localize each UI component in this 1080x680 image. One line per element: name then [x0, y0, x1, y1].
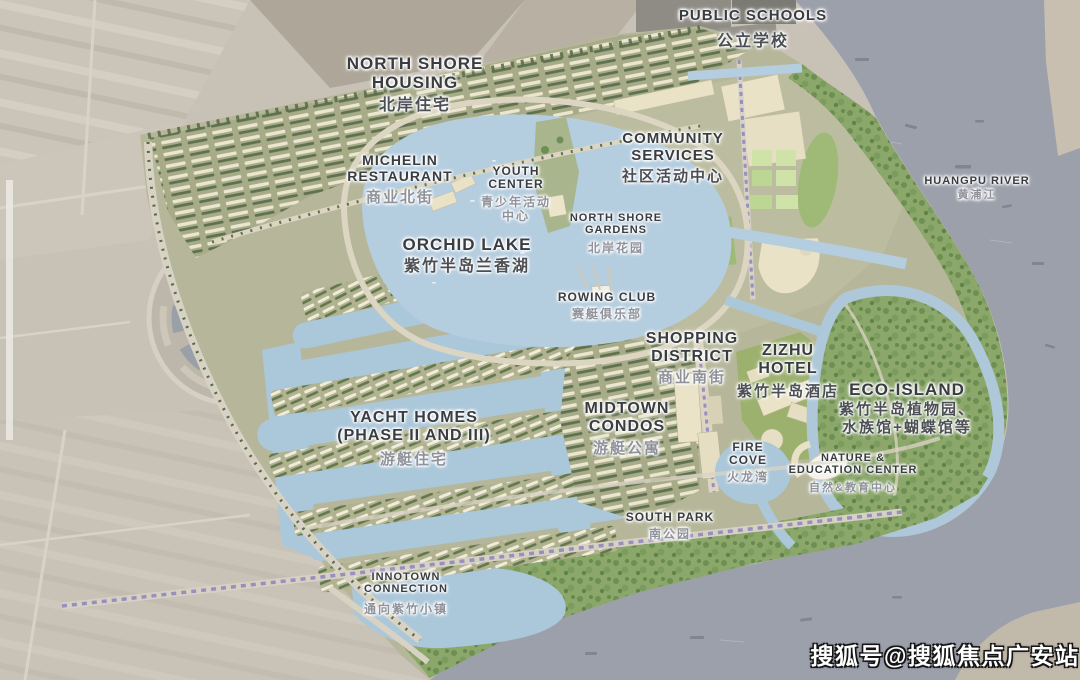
site-plan-rendering: [0, 0, 1080, 680]
sohu-watermark: 搜狐号@搜狐焦点广安站: [811, 637, 1080, 671]
site-plan-map: PUBLIC SCHOOLS 公立学校 NORTH SHORE HOUSING …: [0, 0, 1080, 680]
